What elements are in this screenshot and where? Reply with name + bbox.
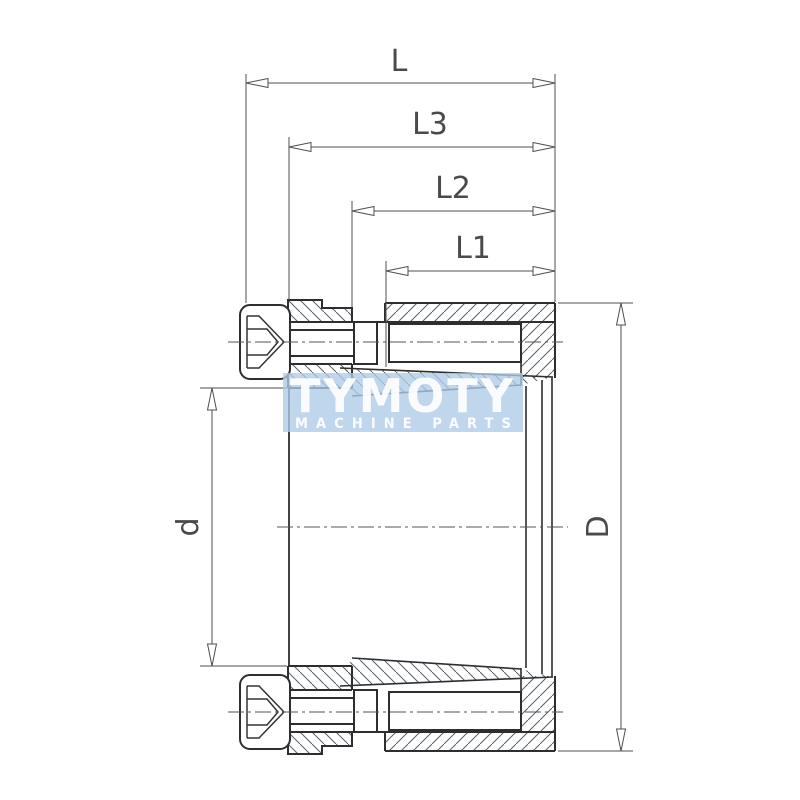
ext-lines-d [200, 388, 287, 666]
arrow-L-left [246, 79, 268, 88]
arrow-d-top [208, 388, 217, 410]
arrow-D-top [617, 303, 626, 325]
arrow-L1-right [533, 267, 555, 276]
screw-thread-top [389, 324, 521, 362]
arrow-L2-right [533, 207, 555, 216]
dim-label-D: D [581, 515, 616, 538]
screw-shank-bottom [290, 698, 354, 724]
hatch-flange-bottom [288, 732, 352, 754]
dim-label-L1: L1 [455, 231, 491, 266]
watermark-tagline: MACHINE PARTS [295, 416, 519, 432]
dim-label-L3: L3 [412, 107, 448, 142]
screw-shank-top [290, 330, 354, 356]
arrow-L1-left [386, 267, 408, 276]
dim-label-d: d [171, 517, 206, 536]
hatch-outer-ring-top [385, 303, 555, 322]
arrow-D-bottom [617, 729, 626, 751]
hatch-outer-ring-bottom [385, 732, 555, 751]
arrow-L-right [533, 79, 555, 88]
screw-thread-bottom [389, 692, 521, 730]
locking-assembly-drawing: L L3 L2 L1 d D TYMOTY MACHINE PARTS [0, 0, 800, 800]
spacer-bottom [354, 690, 377, 732]
arrow-L3-left [289, 143, 311, 152]
dim-label-L2: L2 [435, 171, 471, 206]
arrow-d-bottom [208, 644, 217, 666]
watermark-brand: TYMOTY [290, 369, 516, 423]
spacer-top [354, 322, 377, 364]
hatch-right-block-bottom [521, 676, 555, 732]
hatch-flange-top [288, 300, 352, 322]
technical-drawing-page: L L3 L2 L1 d D TYMOTY MACHINE PARTS [0, 0, 800, 800]
dimension-labels: L L3 L2 L1 d D [171, 44, 616, 539]
dim-label-L: L [391, 44, 408, 79]
watermark: TYMOTY MACHINE PARTS [283, 369, 523, 432]
hatch-right-block-top [521, 322, 555, 378]
arrow-L3-right [533, 143, 555, 152]
arrow-L2-left [352, 207, 374, 216]
